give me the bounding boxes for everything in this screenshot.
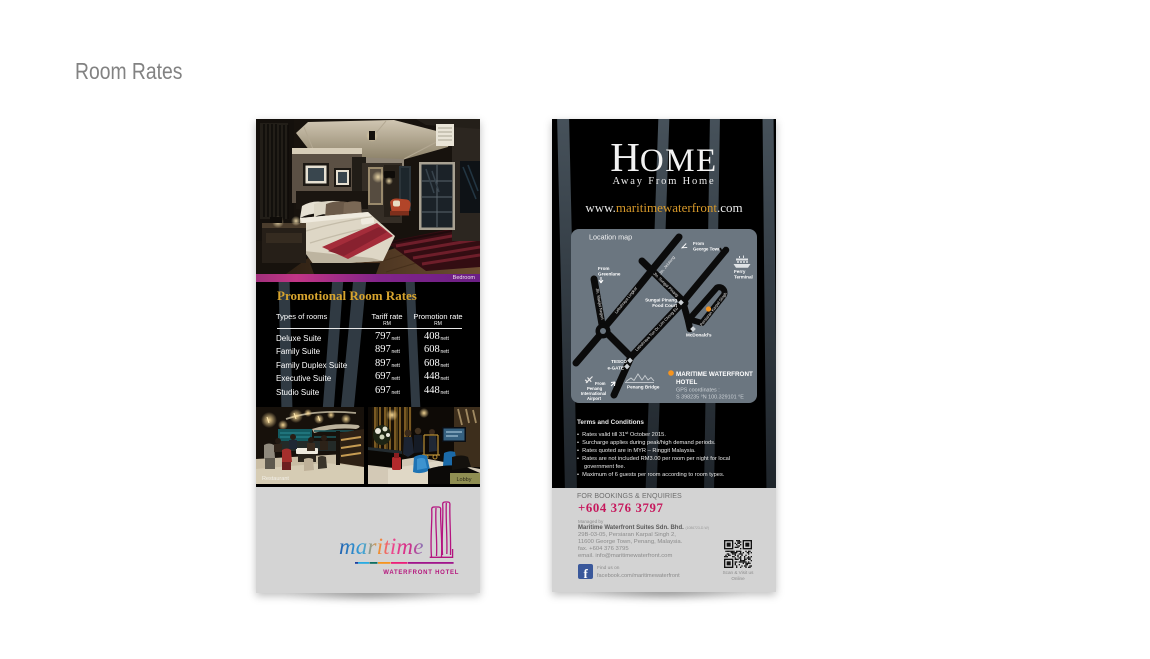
svg-text:Food Court: Food Court	[652, 303, 677, 308]
svg-text:e-GATE: e-GATE	[607, 366, 624, 371]
svg-text:Penang Bridge: Penang Bridge	[627, 385, 660, 390]
svg-text:Location map: Location map	[589, 233, 632, 242]
svg-text:Greenlane: Greenlane	[598, 272, 621, 277]
svg-text:Ferry: Ferry	[734, 269, 746, 274]
svg-text:McDonald's: McDonald's	[686, 333, 712, 338]
svg-text:George Town: George Town	[693, 247, 721, 252]
svg-text:Airport: Airport	[587, 396, 602, 401]
svg-text:WATERFRONT HOTEL: WATERFRONT HOTEL	[383, 570, 459, 576]
svg-text:Lobby: Lobby	[457, 477, 472, 483]
svg-text:S 398235 °N 100.329101 °E: S 398235 °N 100.329101 °E	[676, 395, 744, 401]
svg-text:TESCO: TESCO	[611, 359, 627, 364]
svg-text:Sungai Pinang: Sungai Pinang	[645, 298, 677, 303]
svg-text:From: From	[598, 266, 609, 271]
svg-text:GPS coordinates :: GPS coordinates :	[676, 388, 720, 394]
svg-text:Restaurant: Restaurant	[262, 476, 289, 482]
svg-text:From: From	[693, 241, 704, 246]
svg-text:Terminal: Terminal	[734, 275, 753, 280]
svg-text:maritime: maritime	[339, 534, 424, 559]
svg-text:HOTEL: HOTEL	[676, 379, 697, 386]
svg-text:MARITIME WATERFRONT: MARITIME WATERFRONT	[676, 371, 753, 378]
